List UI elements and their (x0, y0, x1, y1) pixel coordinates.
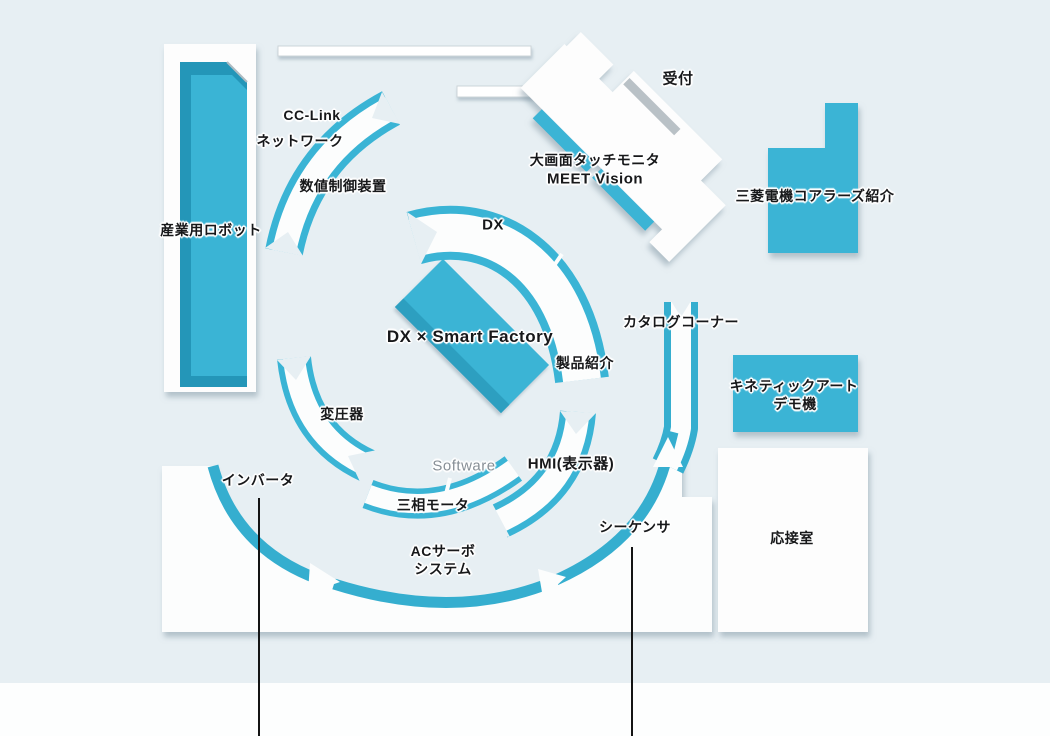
hmi-label: HMI(表示器) (528, 453, 615, 474)
touch-monitor-label: 大画面タッチモニタ (530, 150, 661, 170)
koalas-label: 三菱電機コアラーズ紹介 (736, 186, 895, 206)
kinetic-art-sublabel: デモ機 (773, 394, 817, 414)
industrial-robot-label: 産業用ロボット (160, 220, 262, 240)
kinetic-art-label: キネティックアート (730, 376, 859, 396)
floor-map: CC-Link ネットワーク 数値制御装置 産業用ロボット DX 受付 大画面タ… (0, 0, 1050, 736)
sequencer-label: シーケンサ (599, 517, 671, 537)
drawing-room-label: 応接室 (770, 528, 814, 548)
reception-label: 受付 (662, 68, 693, 89)
nc-device-label: 数値制御装置 (300, 176, 387, 196)
three-phase-motor-label: 三相モータ (397, 495, 470, 515)
catalog-corner-label: カタログコーナー (623, 312, 739, 332)
product-intro-label: 製品紹介 (556, 353, 614, 373)
software-label: Software (432, 458, 495, 475)
smart-factory-label: DX × Smart Factory (387, 327, 553, 347)
network-label: ネットワーク (257, 131, 344, 151)
ac-servo-label: ACサーボ (411, 541, 476, 561)
top-wall-bar-long (278, 46, 531, 56)
cc-link-label: CC-Link (283, 107, 340, 123)
floor-map-canvas (0, 0, 1050, 736)
meet-vision-label: MEET Vision (547, 171, 643, 188)
inverter-label: インバータ (222, 470, 295, 490)
dx-label: DX (482, 217, 504, 234)
ac-servo-sublabel: システム (414, 559, 472, 579)
transformer-label: 変圧器 (320, 404, 364, 424)
bottom-margin-strip (0, 683, 1050, 736)
